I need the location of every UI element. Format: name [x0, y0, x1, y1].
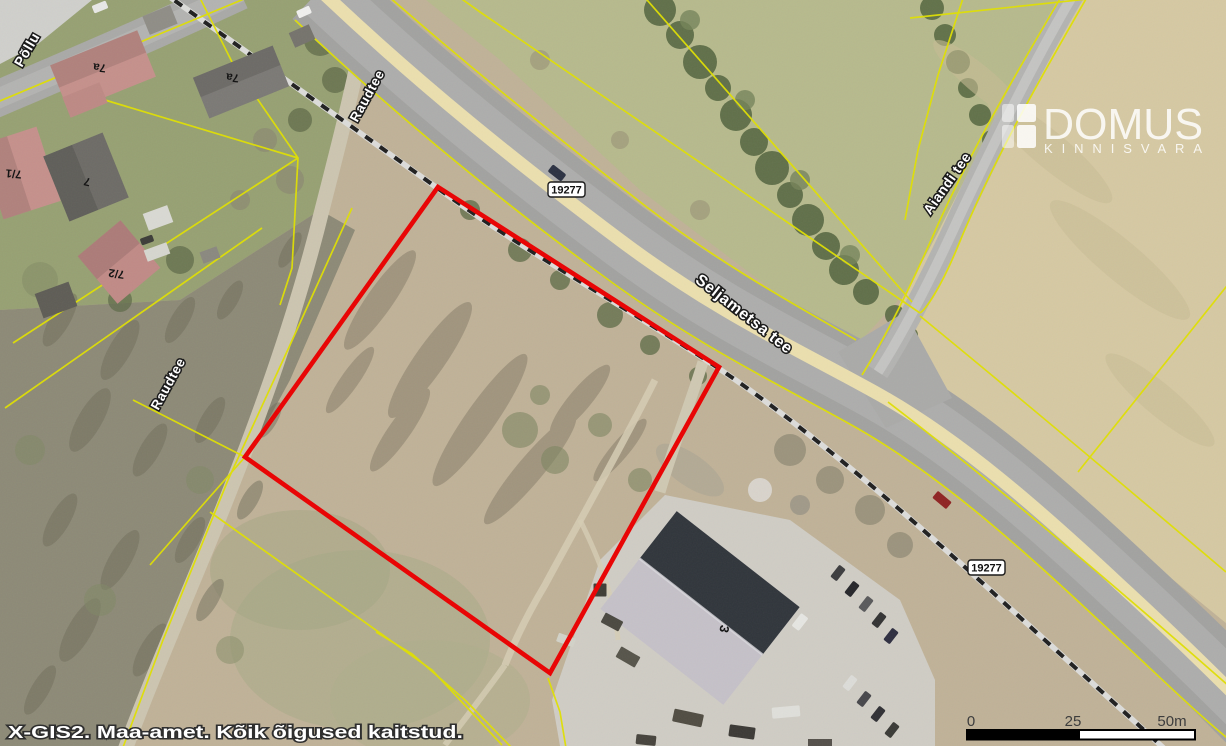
domus-window-icon	[1002, 104, 1036, 148]
road-number-badge-2: 19277	[968, 560, 1005, 575]
truck-3	[636, 734, 657, 746]
scale-bar-white	[1080, 731, 1194, 739]
container	[808, 739, 832, 746]
map-viewport[interactable]: Põllu Raudtee Raudtee Seljametsa tee Aia…	[0, 0, 1226, 746]
house-number: 7/1	[5, 166, 23, 179]
house-number: 7/2	[108, 266, 126, 280]
brand-watermark: DOMUS KINNISVARA	[1002, 100, 1203, 156]
scale-tick-mid: 25	[1065, 713, 1082, 730]
house-number: 7a	[225, 70, 240, 84]
svg-text:19277: 19277	[971, 563, 1002, 575]
road-number-badge-1: 19277	[548, 182, 585, 197]
house-number: 7a	[92, 60, 107, 74]
scale-tick-start: 0	[967, 713, 975, 730]
map-attribution: X-GIS2. Maa-amet. Kõik õigused kaitstud.	[8, 722, 463, 742]
svg-text:19277: 19277	[551, 185, 582, 197]
scale-tick-end: 50m	[1157, 713, 1186, 730]
